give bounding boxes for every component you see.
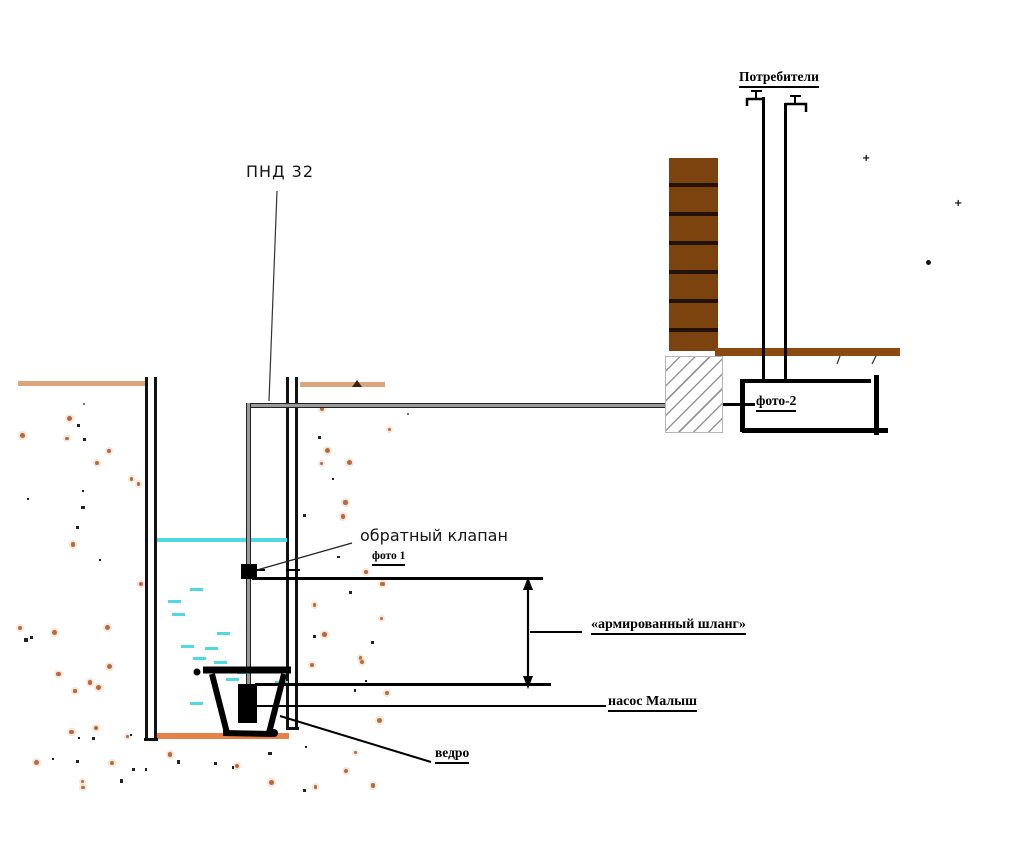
soil-speck — [92, 737, 95, 740]
soil-speck — [130, 477, 133, 480]
soil-speck — [349, 591, 352, 594]
soil-speck — [18, 626, 22, 630]
pump-leader-line — [255, 705, 606, 707]
water-ripple-dash — [205, 647, 218, 650]
house-floor — [715, 348, 900, 356]
label-photo1: фото 1 — [372, 550, 405, 566]
soil-speck — [52, 758, 54, 760]
well-casing-right-outer — [295, 377, 298, 730]
soil-speck — [139, 582, 143, 586]
water-ripple-dash — [190, 588, 203, 591]
water-level-line — [157, 538, 287, 542]
well-casing-left-inner — [154, 377, 157, 740]
soil-speck — [83, 438, 86, 441]
foundation-hatched-block — [665, 356, 723, 433]
diagram-canvas: ПНД 32 Потребители обратный клапан фото … — [0, 0, 1024, 853]
soil-speck — [310, 663, 314, 667]
soil-speck — [313, 635, 316, 638]
soil-speck — [82, 490, 84, 492]
ground-line-left — [18, 381, 145, 386]
soil-speck — [322, 632, 327, 637]
faucet-right-icon — [785, 96, 806, 112]
floor-tick-2 — [872, 356, 876, 364]
soil-speck — [347, 460, 352, 465]
water-ripple-dash — [214, 661, 227, 664]
soil-speck — [177, 760, 180, 763]
soil-speck — [34, 760, 39, 765]
label-check-valve: обратный клапан — [360, 527, 508, 545]
label-hose: «армированный шланг» — [591, 617, 746, 635]
water-ripple-dash — [172, 613, 185, 616]
soil-speck — [388, 428, 391, 431]
soil-speck — [303, 789, 306, 792]
valve-tick-left — [257, 569, 265, 571]
soil-speck — [110, 761, 114, 765]
water-ripple-dash — [237, 671, 250, 674]
soil-speck — [27, 498, 29, 500]
soil-speck — [126, 735, 129, 738]
stray-small-mark — [407, 413, 409, 415]
soil-speck — [268, 752, 271, 755]
soil-speck — [314, 785, 318, 789]
hose-bottom-measure-line — [255, 683, 551, 686]
soil-speck — [73, 689, 76, 692]
soil-speck — [354, 751, 358, 755]
floor-tick-1 — [837, 356, 840, 364]
soil-speck — [78, 737, 80, 739]
stray-dot-mark — [926, 260, 931, 265]
well-casing-right-inner — [286, 377, 289, 730]
soil-speck — [385, 691, 389, 695]
well-casing-left-cap — [144, 738, 158, 741]
soil-speck — [313, 603, 317, 607]
soil-speck — [235, 764, 239, 768]
soil-speck — [71, 542, 75, 546]
soil-speck — [76, 760, 79, 763]
soil-speck — [81, 780, 84, 783]
soil-speck — [380, 617, 383, 620]
water-ripple-dash — [226, 678, 239, 681]
water-ripple-dash — [168, 600, 181, 603]
hose-label-connector — [530, 631, 582, 633]
soil-speck — [30, 636, 32, 638]
soil-speck — [88, 680, 93, 685]
soil-speck — [364, 570, 367, 573]
label-photo2: фото-2 — [756, 394, 796, 412]
soil-speck — [269, 780, 274, 785]
check-valve — [241, 564, 257, 579]
stray-dot-near-bucket — [194, 669, 201, 676]
soil-speck — [325, 448, 330, 453]
supply-pipe-riser — [246, 403, 251, 686]
valve-tick-right — [286, 569, 300, 571]
soil-speck — [305, 746, 308, 749]
soil-speck — [107, 449, 111, 453]
soil-speck — [81, 506, 84, 509]
soil-speck — [303, 514, 306, 517]
soil-speck — [145, 768, 147, 770]
hose-top-measure-line — [252, 577, 543, 580]
soil-speck — [94, 726, 98, 730]
soil-speck — [371, 783, 375, 787]
soil-speck — [67, 416, 72, 421]
soil-speck — [365, 680, 367, 682]
soil-speck — [81, 786, 85, 790]
soil-speck — [354, 689, 356, 691]
soil-speck — [76, 526, 79, 529]
soil-speck — [341, 514, 345, 518]
soil-speck — [332, 478, 334, 480]
bucket-left-side — [212, 674, 227, 733]
soil-speck — [371, 641, 374, 644]
soil-speck — [99, 559, 101, 561]
soil-speck — [377, 718, 382, 723]
soil-speck — [107, 664, 112, 669]
label-consumers: Потребители — [739, 70, 819, 88]
label-pump: насос Малыш — [608, 694, 697, 712]
well-casing-left-outer — [145, 377, 148, 740]
soil-speck — [137, 482, 141, 486]
water-ripple-dash — [190, 702, 203, 705]
soil-speck — [24, 638, 27, 641]
soil-speck — [232, 766, 234, 768]
soil-speck — [65, 437, 69, 441]
stray-small-mark — [83, 403, 85, 405]
soil-speck — [120, 779, 123, 782]
soil-speck — [360, 660, 364, 664]
well-bottom-strip — [155, 733, 289, 739]
water-ripple-dash — [193, 657, 206, 660]
stray-plus-mark: + — [862, 153, 870, 164]
water-ripple-dash — [217, 632, 230, 635]
ground-line-right — [300, 382, 385, 387]
soil-speck — [168, 752, 172, 756]
soil-speck — [132, 768, 135, 771]
photo2-box-bottom — [742, 428, 888, 433]
soil-speck — [318, 436, 321, 439]
soil-speck — [96, 685, 101, 690]
bucket-leader-line — [280, 716, 431, 762]
supply-pipe-horizontal — [246, 403, 666, 408]
water-ripple-dash — [181, 645, 194, 648]
soil-speck — [56, 672, 61, 677]
soil-speck — [380, 582, 385, 587]
soil-speck — [344, 769, 348, 773]
pump-body — [238, 684, 257, 723]
photo2-box-top — [740, 379, 871, 383]
photo2-box-right — [874, 375, 879, 435]
soil-speck — [343, 500, 348, 505]
consumer-pipe-left — [762, 97, 765, 381]
stray-plus-mark: + — [954, 198, 962, 209]
consumer-pipe-right — [784, 103, 787, 381]
soil-speck — [20, 433, 25, 438]
brick-wall — [669, 158, 718, 351]
soil-speck — [77, 424, 80, 427]
label-pnd32: ПНД 32 — [246, 163, 314, 181]
well-casing-right-cap — [286, 727, 299, 730]
photo2-connector-line — [723, 403, 755, 406]
label-bucket: ведро — [435, 746, 469, 764]
soil-speck — [69, 730, 74, 735]
soil-speck — [337, 556, 340, 559]
soil-speck — [95, 461, 99, 465]
soil-speck — [130, 734, 132, 736]
soil-speck — [52, 630, 57, 635]
soil-speck — [214, 762, 217, 765]
soil-speck — [320, 462, 323, 465]
pnd32-leader-line — [269, 191, 277, 401]
soil-speck — [105, 625, 110, 630]
